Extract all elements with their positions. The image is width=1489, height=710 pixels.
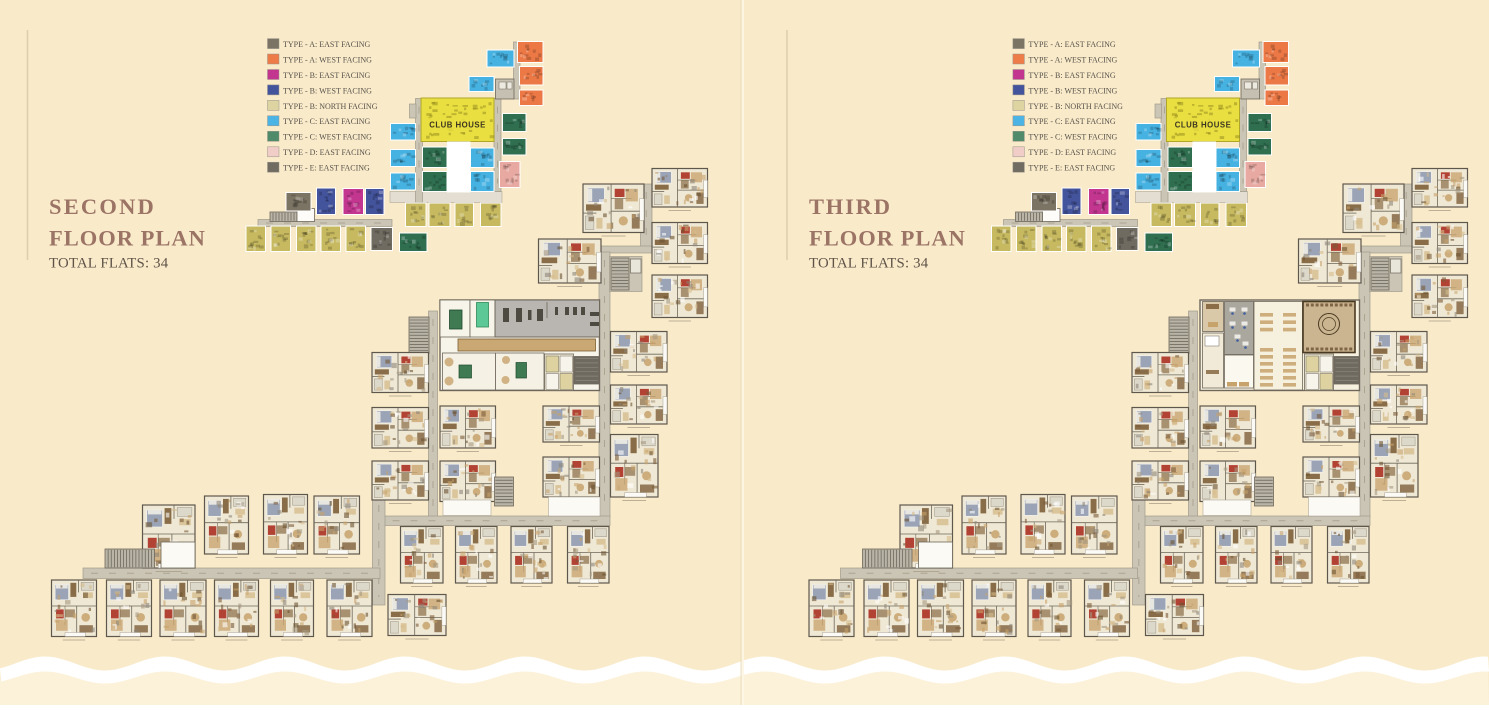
svg-text:FLOOR PLAN: FLOOR PLAN — [49, 226, 206, 251]
svg-text:TYPE - D: EAST FACING: TYPE - D: EAST FACING — [283, 148, 371, 157]
svg-text:TOTAL FLATS: 34: TOTAL FLATS: 34 — [49, 256, 169, 272]
svg-text:THIRD: THIRD — [809, 194, 892, 219]
svg-text:TYPE - E: EAST FACING: TYPE - E: EAST FACING — [283, 164, 370, 173]
svg-text:TYPE - B: EAST FACING: TYPE - B: EAST FACING — [1028, 71, 1115, 80]
svg-text:TYPE - A: WEST FACING: TYPE - A: WEST FACING — [283, 55, 372, 64]
svg-text:TYPE - E: EAST FACING: TYPE - E: EAST FACING — [1028, 164, 1115, 173]
svg-text:TYPE - C: WEST FACING: TYPE - C: WEST FACING — [283, 133, 372, 142]
svg-text:TYPE - A: EAST FACING: TYPE - A: EAST FACING — [283, 40, 370, 49]
svg-text:TYPE - B: EAST FACING: TYPE - B: EAST FACING — [283, 71, 370, 80]
svg-text:CLUB HOUSE: CLUB HOUSE — [1175, 121, 1232, 130]
svg-text:TOTAL FLATS: 34: TOTAL FLATS: 34 — [809, 256, 929, 272]
svg-text:TYPE - C: EAST FACING: TYPE - C: EAST FACING — [283, 117, 370, 126]
svg-text:SECOND: SECOND — [49, 194, 156, 219]
svg-text:TYPE - C: EAST FACING: TYPE - C: EAST FACING — [1028, 117, 1115, 126]
svg-text:TYPE - B: WEST FACING: TYPE - B: WEST FACING — [1028, 86, 1117, 95]
svg-text:TYPE - A: WEST FACING: TYPE - A: WEST FACING — [1028, 55, 1117, 64]
svg-text:TYPE - B: NORTH FACING: TYPE - B: NORTH FACING — [1028, 102, 1123, 111]
svg-text:FLOOR PLAN: FLOOR PLAN — [809, 226, 966, 251]
svg-text:TYPE - A: EAST FACING: TYPE - A: EAST FACING — [1028, 40, 1115, 49]
svg-text:TYPE - C: WEST FACING: TYPE - C: WEST FACING — [1028, 133, 1117, 142]
svg-text:TYPE - B: WEST FACING: TYPE - B: WEST FACING — [283, 86, 372, 95]
svg-text:CLUB HOUSE: CLUB HOUSE — [429, 121, 486, 130]
svg-text:TYPE - D: EAST FACING: TYPE - D: EAST FACING — [1028, 148, 1116, 157]
svg-text:TYPE - B: NORTH FACING: TYPE - B: NORTH FACING — [283, 102, 378, 111]
